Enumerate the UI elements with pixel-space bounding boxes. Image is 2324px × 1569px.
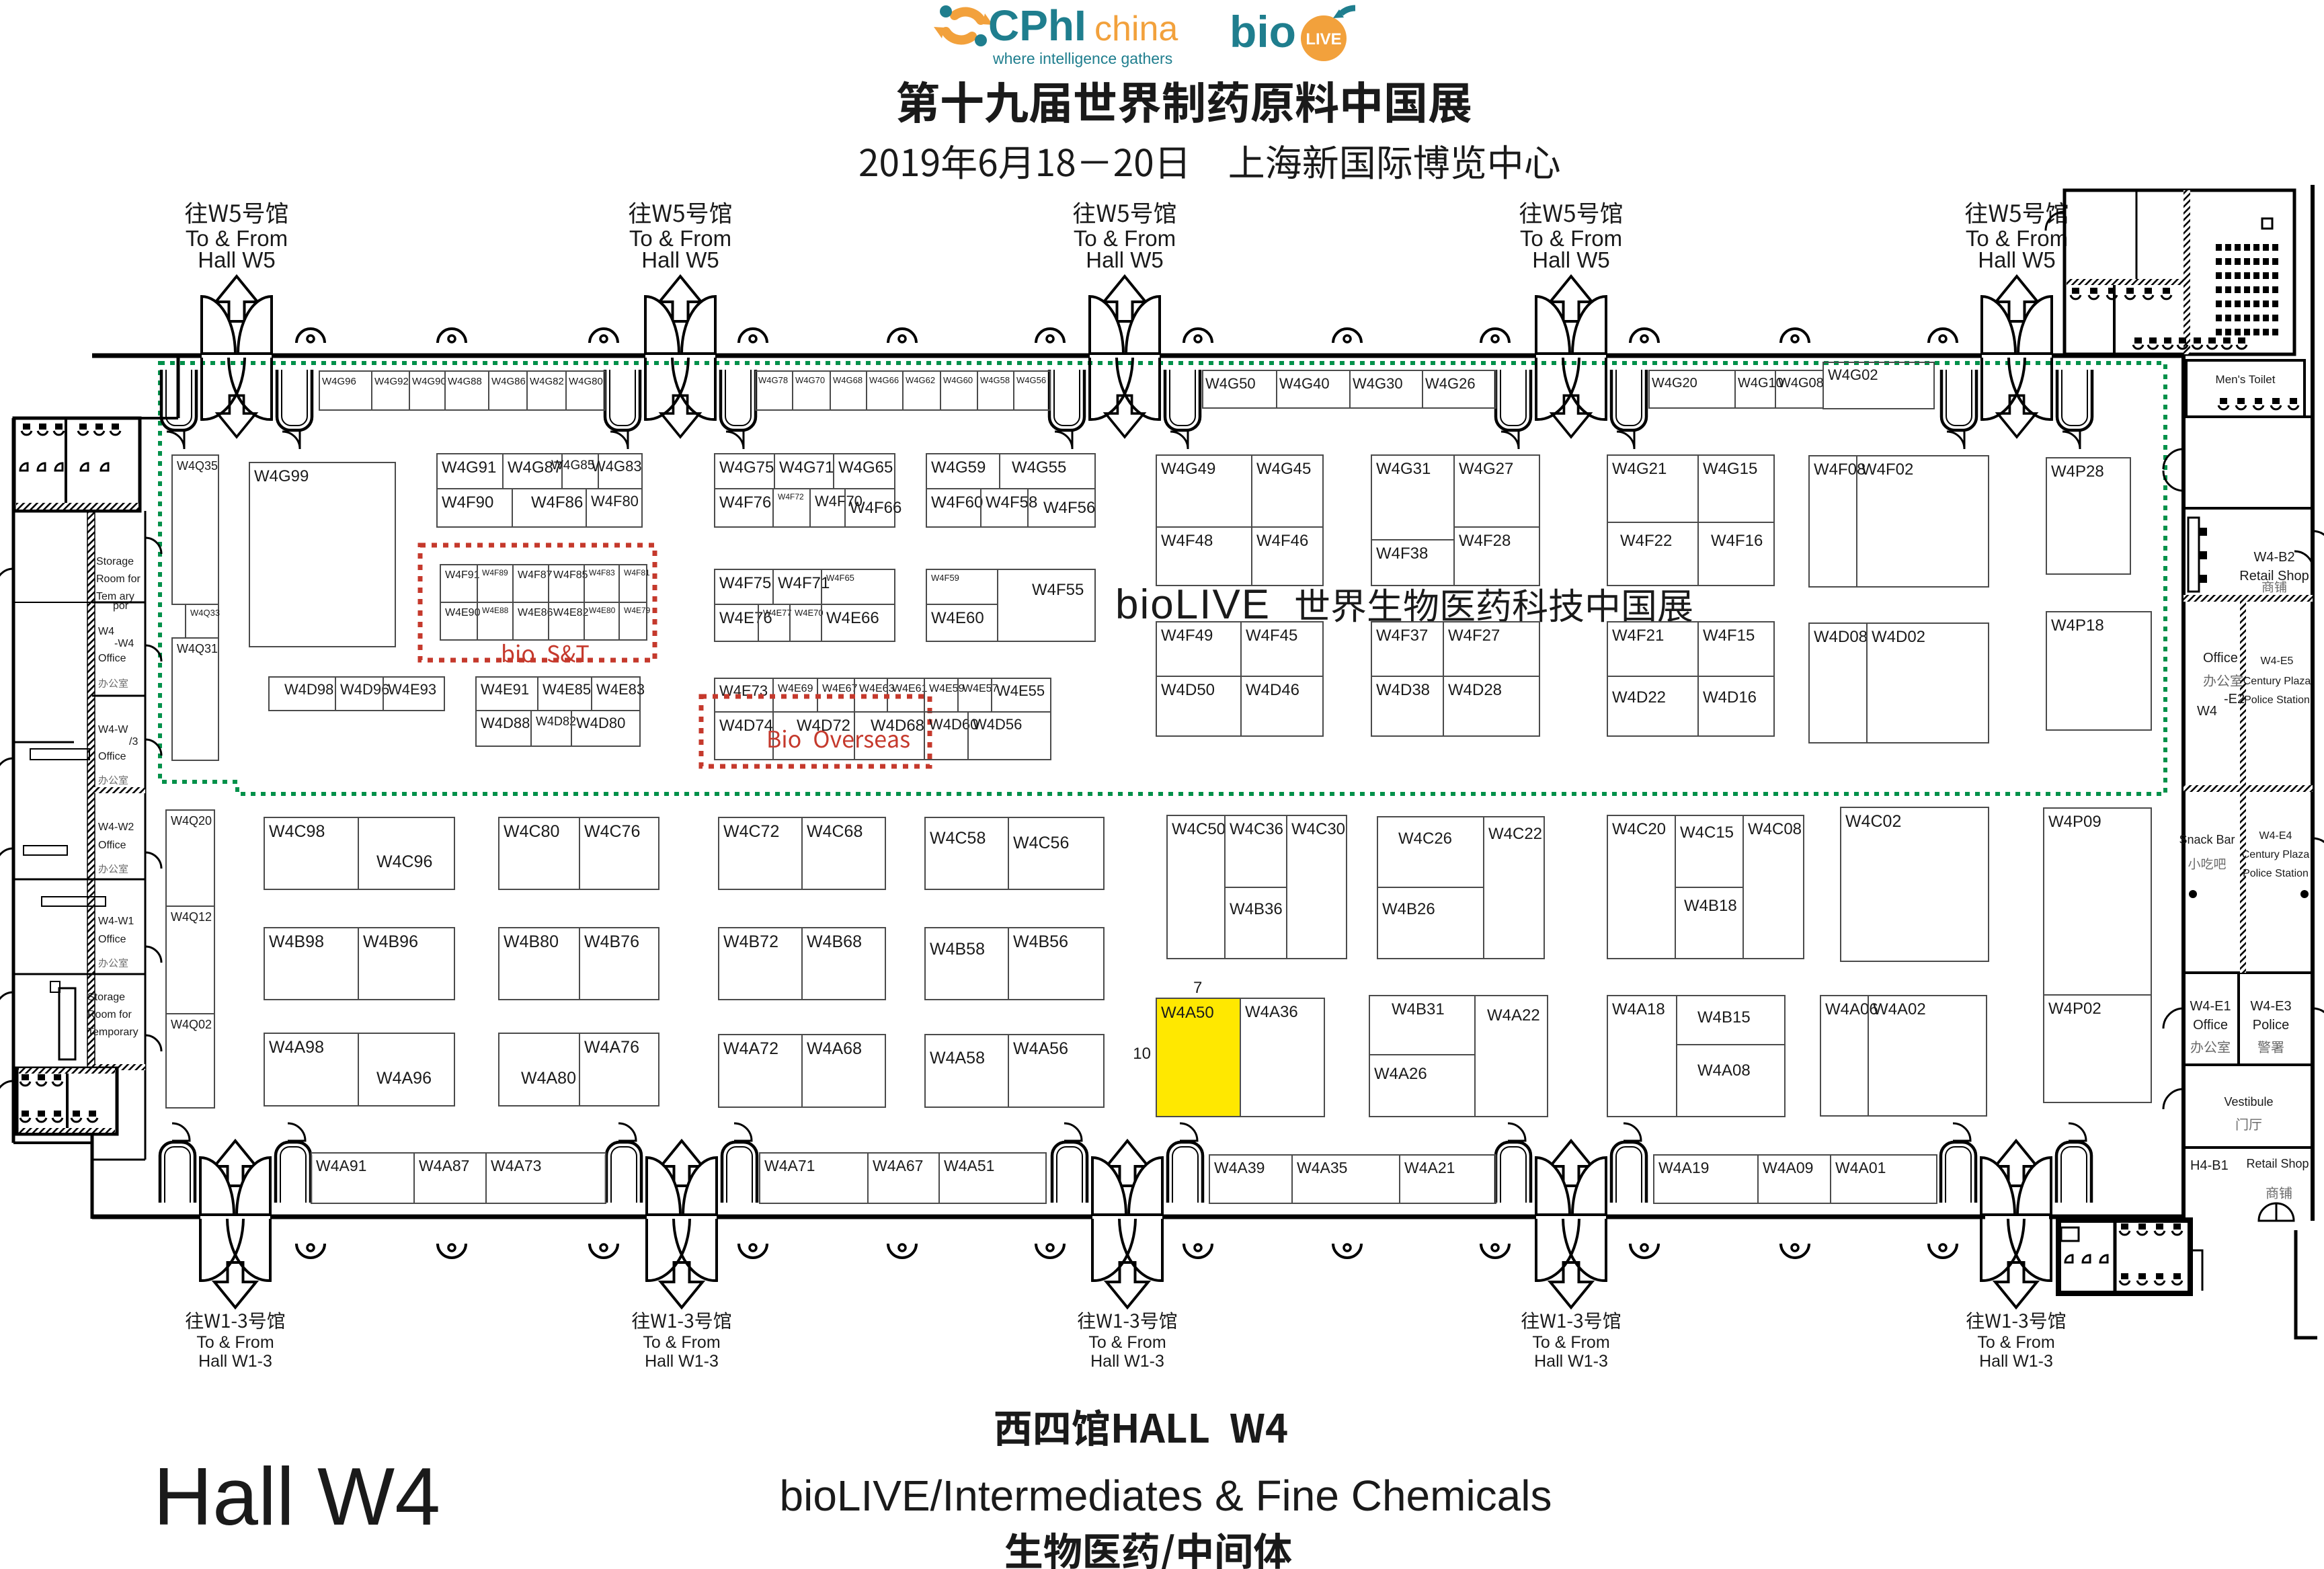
svg-text:W4C26: W4C26 [1398,830,1452,848]
svg-text:W4F27: W4F27 [1448,627,1500,645]
svg-text:W4A51: W4A51 [944,1157,994,1174]
svg-text:W4G68: W4G68 [833,375,863,385]
svg-text:W4B80: W4B80 [504,932,559,951]
svg-text:W4G58: W4G58 [980,375,1010,385]
svg-text:W4F37: W4F37 [1376,627,1428,645]
svg-text:W4D80: W4D80 [576,715,625,731]
svg-text:-E2: -E2 [2224,692,2245,707]
svg-text:Retail Shop: Retail Shop [2246,1157,2309,1170]
svg-text:W4A76: W4A76 [584,1038,639,1057]
svg-text:H4-B1: H4-B1 [2190,1158,2229,1173]
svg-text:W4G31: W4G31 [1376,460,1431,478]
svg-text:W4F02: W4F02 [1861,460,1913,479]
svg-text:W4Q31: W4Q31 [177,642,218,655]
svg-text:W4A67: W4A67 [873,1157,923,1174]
svg-text:Storage: Storage [87,992,125,1003]
svg-text:W4G26: W4G26 [1425,375,1476,392]
svg-text:W4E57: W4E57 [963,683,998,694]
svg-text:W4Q35: W4Q35 [177,459,218,473]
svg-text:W4E63: W4E63 [859,683,895,694]
svg-text:W4G56: W4G56 [1016,375,1046,385]
svg-text:W4G75: W4G75 [719,458,774,477]
svg-text:Office: Office [2193,1018,2228,1033]
svg-text:W4A50: W4A50 [1161,1004,1214,1022]
svg-text:W4F85: W4F85 [553,569,588,581]
svg-text:W4D88: W4D88 [481,715,530,731]
svg-text:W4F80: W4F80 [591,493,639,510]
svg-text:W4A73: W4A73 [491,1157,541,1174]
svg-text:W4G20: W4G20 [1652,376,1697,391]
svg-text:W4A08: W4A08 [1697,1061,1751,1080]
svg-text:W4F59: W4F59 [931,573,959,583]
svg-text:W4D50: W4D50 [1161,681,1215,699]
svg-text:W4A98: W4A98 [269,1038,324,1057]
svg-text:W4G45: W4G45 [1256,460,1311,478]
svg-text:W4B31: W4B31 [1392,1000,1445,1018]
svg-text:W4E82: W4E82 [553,607,589,618]
svg-text:W4A80: W4A80 [521,1069,576,1088]
svg-text:W4C08: W4C08 [1748,820,1802,838]
svg-text:W4A35: W4A35 [1297,1159,1347,1176]
svg-text:W4: W4 [98,626,114,637]
svg-text:W4G99: W4G99 [254,467,309,485]
svg-text:Temporary: Temporary [87,1027,138,1038]
svg-text:W4Q12: W4Q12 [171,910,212,924]
svg-text:W4: W4 [2197,704,2217,719]
svg-text:W4A71: W4A71 [764,1157,815,1174]
svg-text:W4A22: W4A22 [1487,1006,1540,1024]
svg-text:Police Station: Police Station [2243,868,2309,879]
svg-text:W4Q20: W4Q20 [171,814,212,828]
svg-text:W4C20: W4C20 [1612,820,1666,838]
svg-text:W4F49: W4F49 [1161,627,1213,645]
svg-text:Retail Shop: Retail Shop [2239,569,2309,584]
svg-text:W4F86: W4F86 [531,493,583,512]
svg-text:W4G10: W4G10 [1738,376,1784,391]
svg-text:W4E88: W4E88 [482,606,509,615]
svg-text:W4F72: W4F72 [778,492,804,501]
svg-text:W4F15: W4F15 [1703,627,1755,645]
svg-text:W4Q02: W4Q02 [171,1018,212,1031]
svg-text:W4D82: W4D82 [536,715,576,728]
svg-text:W4A18: W4A18 [1612,1000,1665,1018]
svg-text:W4C02: W4C02 [1845,812,1901,831]
svg-text:W4E80: W4E80 [589,606,616,615]
svg-text:W4F08: W4F08 [1814,460,1866,479]
svg-text:W4G60: W4G60 [943,375,973,385]
svg-text:W4E83: W4E83 [596,681,645,698]
svg-text:W4G78: W4G78 [758,375,788,385]
svg-text:W4A91: W4A91 [316,1157,366,1174]
svg-text:W4F76: W4F76 [719,493,771,512]
svg-text:W4-W: W4-W [98,724,128,735]
svg-text:W4G96: W4G96 [322,376,356,387]
svg-text:Men's Toilet: Men's Toilet [2216,373,2276,386]
svg-text:W4A01: W4A01 [1835,1159,1886,1176]
svg-text:Storage: Storage [96,556,134,567]
svg-text:W4D98: W4D98 [284,681,333,698]
svg-text:Room for: Room for [87,1009,132,1020]
svg-text:W4A58: W4A58 [930,1049,985,1068]
svg-text:W4A21: W4A21 [1404,1159,1455,1176]
svg-text:W4G82: W4G82 [530,376,564,387]
svg-text:Office: Office [2203,651,2238,666]
svg-text:W4E93: W4E93 [388,681,436,698]
svg-text:W4B56: W4B56 [1013,932,1068,951]
svg-text:Office: Office [98,751,126,762]
svg-text:W4E67: W4E67 [822,683,858,694]
svg-text:china: china [1094,9,1178,48]
svg-text:W4D46: W4D46 [1246,681,1299,699]
svg-text:W4G86: W4G86 [491,376,526,387]
svg-text:W4A56: W4A56 [1013,1039,1068,1058]
svg-text:W4G92: W4G92 [374,376,409,387]
svg-text:W4G15: W4G15 [1703,460,1757,478]
svg-text:W4G55: W4G55 [1012,458,1066,477]
svg-text:Snack Bar: Snack Bar [2179,833,2235,846]
svg-text:W4C30: W4C30 [1291,820,1345,838]
svg-text:W4-E1: W4-E1 [2190,999,2231,1014]
svg-text:W4C68: W4C68 [807,822,863,841]
svg-text:W4B98: W4B98 [269,932,324,951]
svg-text:7: 7 [1193,979,1202,997]
svg-text:W4E91: W4E91 [481,681,529,698]
svg-text:W4E77: W4E77 [763,608,792,618]
svg-text:W4F21: W4F21 [1612,627,1664,645]
svg-text:W4B36: W4B36 [1230,900,1283,918]
svg-text:W4A68: W4A68 [807,1039,862,1058]
svg-text:W4-B2: W4-B2 [2253,550,2294,565]
svg-text:W4G21: W4G21 [1612,460,1667,478]
svg-text:W4C22: W4C22 [1488,825,1542,843]
svg-text:W4G65: W4G65 [838,458,893,477]
svg-text:W4C72: W4C72 [723,822,779,841]
svg-text:bio: bio [1230,7,1296,56]
svg-text:W4E60: W4E60 [931,609,984,627]
svg-text:W4G88: W4G88 [448,376,482,387]
svg-text:W4G83: W4G83 [592,458,642,475]
svg-text:W4G02: W4G02 [1828,366,1878,383]
svg-text:W4B18: W4B18 [1684,897,1737,915]
svg-text:W4Q33: W4Q33 [190,608,220,618]
svg-text:/3: /3 [129,736,138,748]
svg-text:W4C98: W4C98 [269,822,325,841]
svg-text:10: 10 [1133,1045,1151,1063]
svg-text:W4F45: W4F45 [1246,627,1297,645]
svg-text:W4D16: W4D16 [1703,688,1757,707]
svg-text:W4F55: W4F55 [1032,581,1084,599]
svg-text:W4C50: W4C50 [1172,820,1226,838]
svg-text:W4F75: W4F75 [719,574,771,592]
svg-text:W4E85: W4E85 [543,681,591,698]
svg-text:W4F65: W4F65 [826,573,854,583]
svg-text:W4G71: W4G71 [779,458,834,477]
svg-text:where intelligence gathers: where intelligence gathers [992,50,1172,67]
svg-text:W4F66: W4F66 [850,499,901,517]
svg-text:W4G59: W4G59 [931,458,986,477]
svg-text:W4B76: W4B76 [584,932,639,951]
svg-text:W4A36: W4A36 [1245,1003,1298,1021]
svg-text:W4G08: W4G08 [1778,376,1824,391]
svg-text:W4P09: W4P09 [2048,813,2101,831]
svg-text:W4A96: W4A96 [376,1069,432,1088]
svg-text:W4D02: W4D02 [1872,628,1925,646]
svg-text:W4E55: W4E55 [996,682,1045,699]
svg-text:W4E86: W4E86 [518,607,553,618]
svg-text:Office: Office [98,934,126,945]
svg-text:Century Plaza: Century Plaza [2243,676,2311,687]
svg-text:W4F87: W4F87 [518,569,553,581]
svg-text:W4A87: W4A87 [419,1157,469,1174]
svg-text:W4G30: W4G30 [1353,375,1403,392]
svg-text:W4F28: W4F28 [1459,532,1511,550]
svg-text:W4F46: W4F46 [1256,532,1308,550]
svg-text:W4F58: W4F58 [986,493,1037,512]
svg-text:W4C96: W4C96 [376,852,432,871]
svg-text:-W4: -W4 [114,638,134,649]
svg-text:W4F89: W4F89 [482,568,508,577]
svg-text:W4A72: W4A72 [723,1039,778,1058]
svg-text:W4F81: W4F81 [624,568,650,577]
svg-text:W4F16: W4F16 [1711,532,1763,550]
svg-text:LIVE: LIVE [1306,30,1341,48]
svg-text:W4F83: W4F83 [589,568,615,577]
svg-text:W4D74: W4D74 [719,717,773,735]
svg-text:W4G49: W4G49 [1161,460,1215,478]
svg-text:W4D08: W4D08 [1814,628,1868,646]
svg-text:W4-E5: W4-E5 [2261,655,2294,667]
svg-text:W4F22: W4F22 [1620,532,1672,550]
svg-text:W4C56: W4C56 [1013,834,1069,852]
svg-text:W4C15: W4C15 [1680,823,1734,842]
svg-text:W4F91: W4F91 [445,569,480,581]
svg-text:Century Plaza: Century Plaza [2242,849,2310,860]
svg-text:W4B72: W4B72 [723,932,778,951]
svg-text:W4G40: W4G40 [1279,375,1330,392]
svg-text:W4D38: W4D38 [1376,681,1430,699]
svg-text:W4D60: W4D60 [929,716,978,733]
svg-text:W4G80: W4G80 [569,376,603,387]
svg-text:W4G90: W4G90 [412,376,446,387]
svg-text:W4E59: W4E59 [929,683,965,694]
svg-text:W4D28: W4D28 [1448,681,1502,699]
svg-text:W4-W1: W4-W1 [98,916,134,927]
svg-text:W4C76: W4C76 [584,822,640,841]
svg-text:W4E90: W4E90 [445,607,481,618]
svg-text:W4E69: W4E69 [778,683,813,694]
svg-text:W4G66: W4G66 [869,375,899,385]
svg-text:W4B26: W4B26 [1382,900,1435,918]
svg-text:W4F48: W4F48 [1161,532,1213,550]
svg-text:W4A02: W4A02 [1873,1000,1926,1018]
svg-text:W4E79: W4E79 [624,606,651,615]
svg-text:bioLIVE: bioLIVE [1115,581,1271,628]
svg-text:W4B96: W4B96 [363,932,418,951]
svg-text:W4A06: W4A06 [1825,1000,1878,1018]
svg-text:W4G27: W4G27 [1459,460,1513,478]
svg-text:W4D56: W4D56 [973,716,1022,733]
svg-text:W4A19: W4A19 [1658,1159,1709,1176]
svg-text:W4G50: W4G50 [1205,375,1256,392]
svg-text:W4P28: W4P28 [2051,462,2104,481]
svg-text:W4-E3: W4-E3 [2250,999,2291,1014]
svg-text:W4F90: W4F90 [442,493,493,512]
svg-text:W4C36: W4C36 [1230,820,1283,838]
svg-text:W4F56: W4F56 [1043,499,1095,517]
svg-text:W4C80: W4C80 [504,822,559,841]
svg-text:W4F60: W4F60 [931,493,983,512]
svg-text:W4A09: W4A09 [1763,1159,1813,1176]
svg-text:W4G85: W4G85 [551,458,594,473]
svg-text:W4D68: W4D68 [871,717,924,735]
svg-text:Office: Office [98,653,126,664]
svg-text:W4A39: W4A39 [1214,1159,1265,1176]
svg-text:W4G70: W4G70 [795,375,825,385]
svg-text:W4B58: W4B58 [930,940,985,959]
svg-text:Office: Office [98,840,126,851]
svg-text:bioLIVE/Intermediates & Fine C: bioLIVE/Intermediates & Fine Chemicals [780,1472,1552,1520]
svg-text:Room for: Room for [96,573,141,585]
svg-text:W4-E4: W4-E4 [2259,830,2292,842]
svg-text:W4D22: W4D22 [1612,688,1666,707]
svg-text:Police Station: Police Station [2244,694,2310,706]
svg-text:W4G91: W4G91 [442,458,496,477]
svg-text:W4E70: W4E70 [795,608,824,618]
svg-text:CPhI: CPhI [988,1,1086,50]
svg-text:W4G62: W4G62 [906,375,935,385]
svg-text:W4B15: W4B15 [1697,1008,1751,1027]
svg-text:W4B68: W4B68 [807,932,862,951]
svg-text:W4P18: W4P18 [2051,616,2104,635]
svg-text:Hall W4: Hall W4 [153,1451,440,1542]
svg-text:W4P02: W4P02 [2048,1000,2101,1018]
svg-text:W4E61: W4E61 [892,683,928,694]
svg-text:W4E66: W4E66 [826,609,879,627]
svg-text:W4D96: W4D96 [340,681,389,698]
svg-text:W4C58: W4C58 [930,829,986,848]
svg-text:Vestibule: Vestibule [2224,1095,2273,1109]
svg-text:Police: Police [2253,1018,2289,1033]
svg-text:W4-W2: W4-W2 [98,821,134,833]
svg-text:W4A26: W4A26 [1374,1065,1427,1083]
svg-text:W4F38: W4F38 [1376,545,1428,563]
